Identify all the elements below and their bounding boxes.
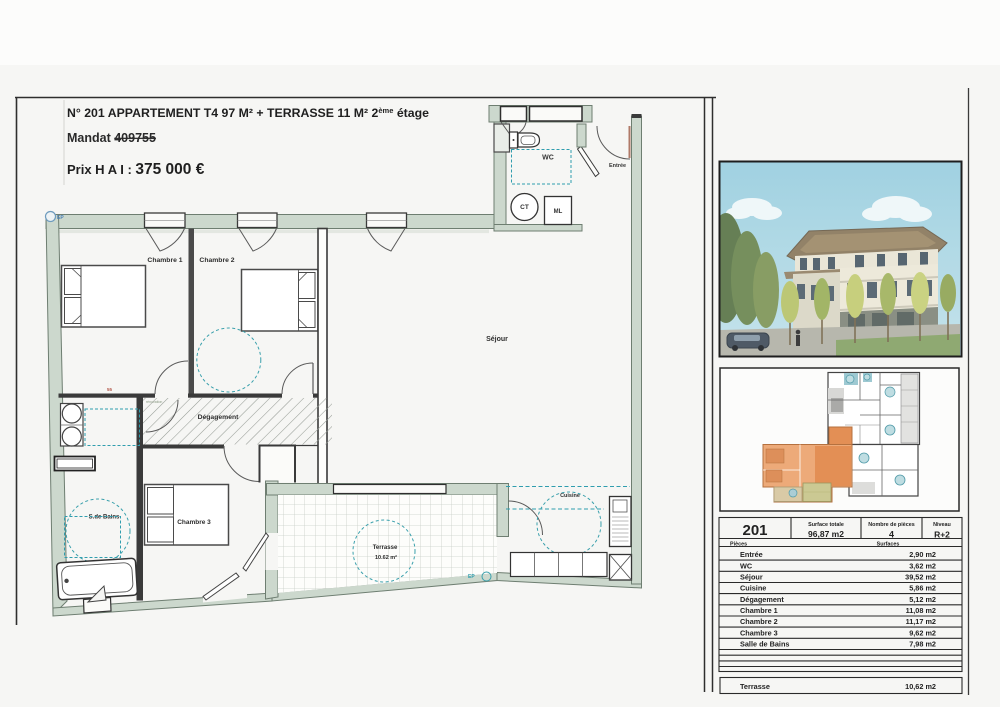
svg-text:CT: CT [520,204,529,211]
svg-text:7,98 m2: 7,98 m2 [909,640,936,649]
svg-text:Salle de Bains: Salle de Bains [740,640,789,649]
svg-text:Terrasse: Terrasse [740,682,770,691]
svg-text:rénovation: rénovation [146,400,162,404]
svg-text:Entrée: Entrée [609,163,626,169]
svg-text:Séjour: Séjour [740,573,763,582]
svg-text:Cuisine: Cuisine [560,493,580,499]
svg-text:9,62 m2: 9,62 m2 [909,628,936,637]
svg-text:Prix H A I : 375 000 €: Prix H A I : 375 000 € [67,161,205,178]
svg-text:Terrasse: Terrasse [373,545,398,551]
svg-text:Nombre de pièces: Nombre de pièces [868,522,914,528]
svg-text:Chambre 3: Chambre 3 [740,628,778,637]
svg-text:Surface totale: Surface totale [808,522,844,528]
svg-text:Chambre 2: Chambre 2 [199,257,234,264]
svg-text:S.de Bains: S.de Bains [89,515,120,521]
svg-text:3,62 m2: 3,62 m2 [909,561,936,570]
svg-text:55: 55 [107,387,113,392]
svg-text:10,62 m2: 10,62 m2 [905,682,936,691]
svg-text:Dégagement: Dégagement [740,595,784,604]
svg-text:Mandat 409755: Mandat 409755 [67,131,156,145]
svg-text:EP: EP [57,215,64,221]
svg-text:96,87 m2: 96,87 m2 [808,529,844,539]
svg-text:Entrée: Entrée [740,550,763,559]
svg-text:Pièces: Pièces [730,542,747,548]
svg-text:5,86 m2: 5,86 m2 [909,584,936,593]
svg-text:Chambre 3: Chambre 3 [177,519,211,526]
svg-text:Chambre 1: Chambre 1 [147,257,182,264]
svg-text:10.62 m²: 10.62 m² [375,554,397,561]
svg-text:Niveau: Niveau [933,522,951,528]
svg-text:R+2: R+2 [934,530,950,540]
svg-text:Chambre 1: Chambre 1 [740,606,778,615]
svg-text:201: 201 [742,522,767,539]
svg-text:WC: WC [740,561,753,570]
svg-text:4: 4 [889,530,894,540]
svg-text:Cuisine: Cuisine [740,584,766,593]
svg-text:2,90 m2: 2,90 m2 [909,550,936,559]
svg-text:Chambre 2: Chambre 2 [740,617,778,626]
svg-text:Séjour: Séjour [486,336,508,343]
svg-text:Surfaces: Surfaces [877,542,900,548]
svg-text:39,52 m2: 39,52 m2 [905,573,936,582]
svg-text:5,12 m2: 5,12 m2 [909,595,936,604]
svg-text:11,08 m2: 11,08 m2 [906,606,936,615]
svg-text:WC: WC [542,155,554,162]
svg-text:N° 201 APPARTEMENT T4 97 M²: N° 201 APPARTEMENT T4 97 M² + TERRASSE 1… [67,106,429,120]
svg-text:EP: EP [468,574,475,580]
svg-text:ML: ML [554,209,563,215]
svg-text:Dégagement: Dégagement [198,414,240,421]
svg-text:11,17 m2: 11,17 m2 [906,617,936,626]
